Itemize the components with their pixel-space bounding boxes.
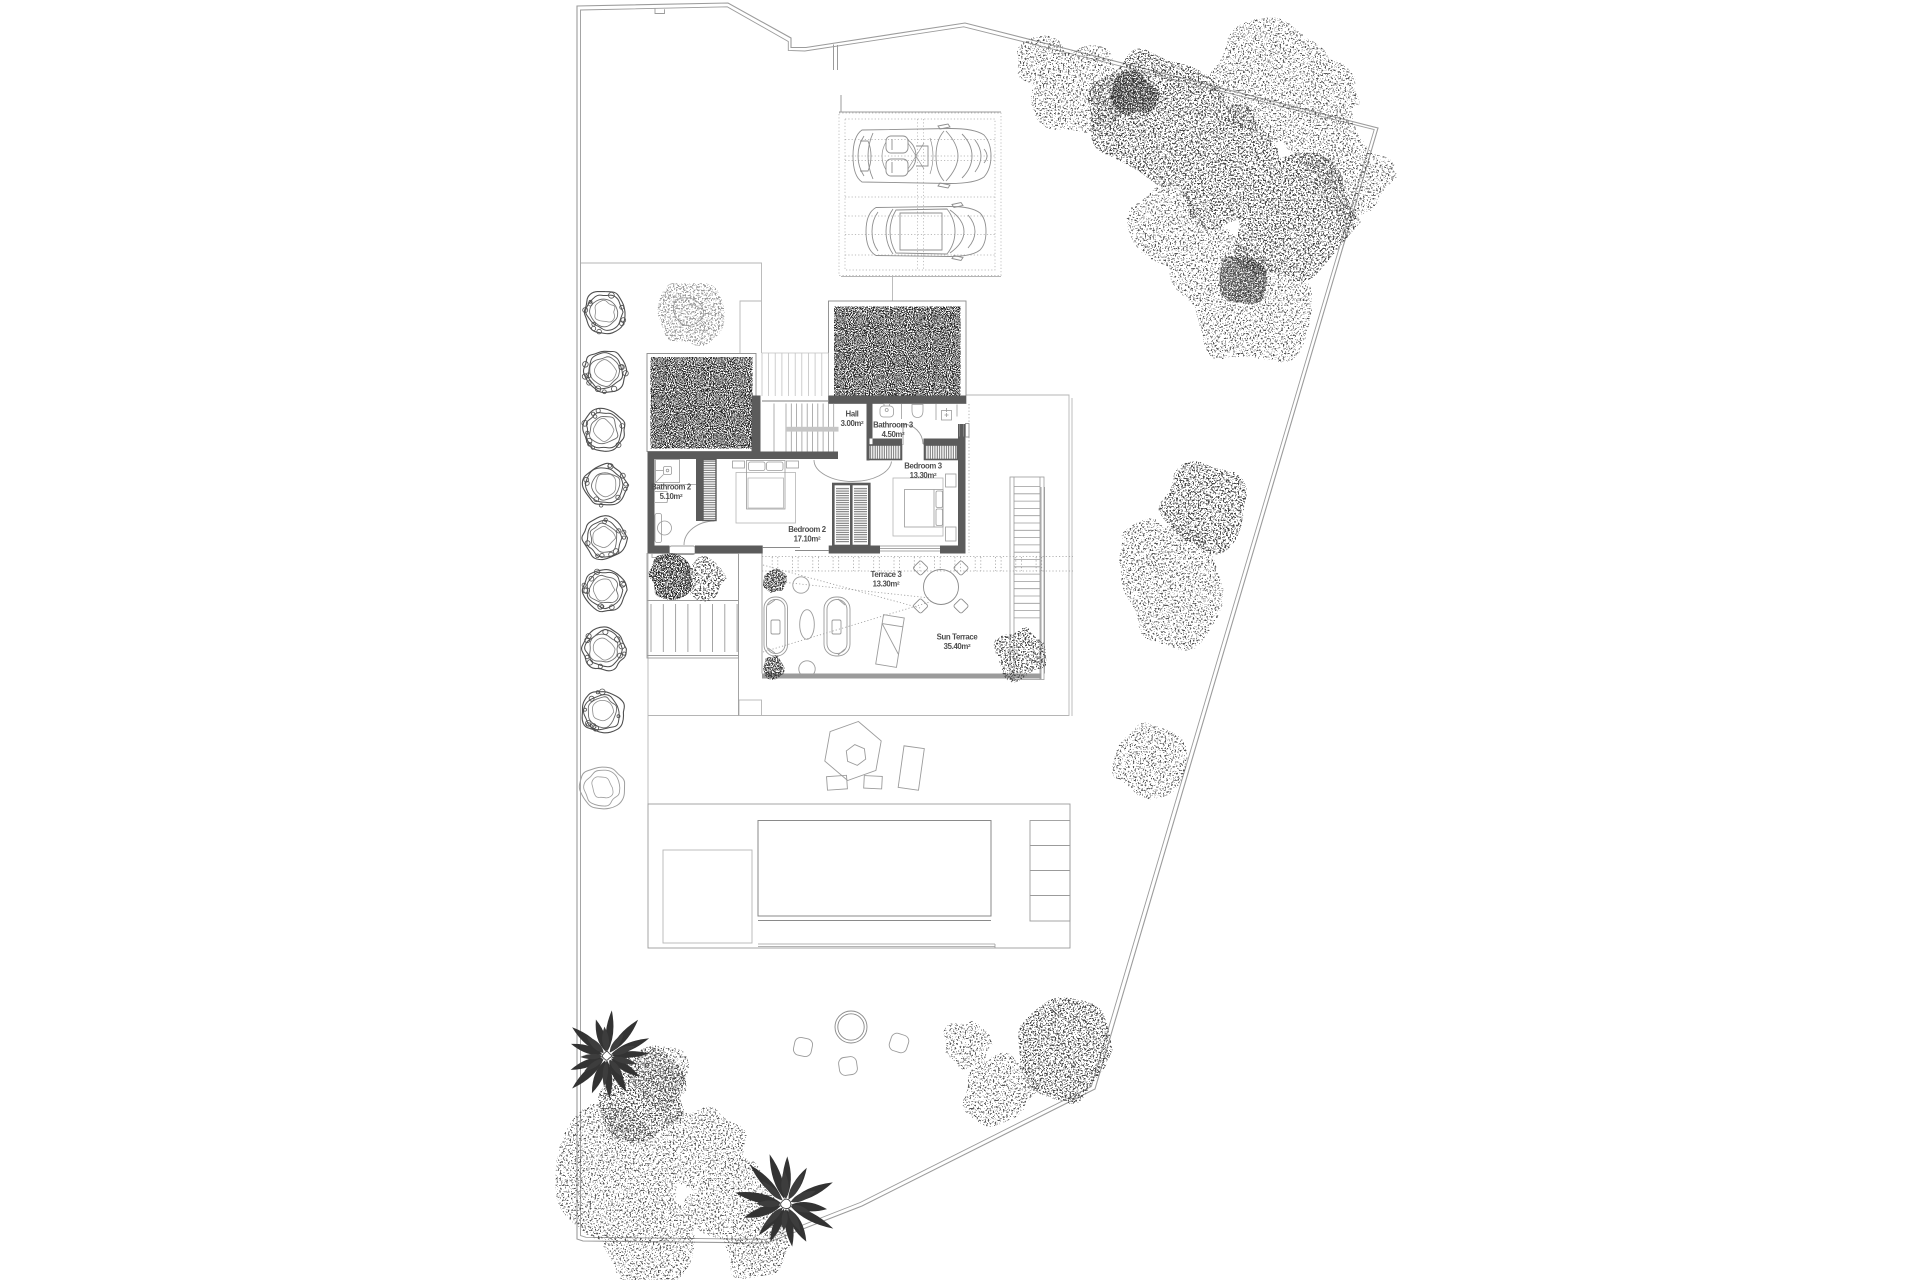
svg-text:Hall: Hall <box>846 410 859 419</box>
svg-text:13.30m2: 13.30m2 <box>910 471 937 480</box>
svg-text:Bathroom 3: Bathroom 3 <box>873 421 914 430</box>
svg-text:5.10m2: 5.10m2 <box>660 492 683 501</box>
svg-text:Bedroom 3: Bedroom 3 <box>904 462 943 471</box>
svg-text:13.30m2: 13.30m2 <box>873 580 900 589</box>
svg-text:17.10m2: 17.10m2 <box>794 535 821 544</box>
svg-text:Sun Terrace: Sun Terrace <box>937 633 979 642</box>
svg-text:Bedroom 2: Bedroom 2 <box>788 525 827 534</box>
svg-text:Bathroom 2: Bathroom 2 <box>651 483 692 492</box>
svg-text:35.40m2: 35.40m2 <box>944 642 971 651</box>
svg-text:3.00m2: 3.00m2 <box>841 419 864 428</box>
svg-text:4.50m2: 4.50m2 <box>882 430 905 439</box>
